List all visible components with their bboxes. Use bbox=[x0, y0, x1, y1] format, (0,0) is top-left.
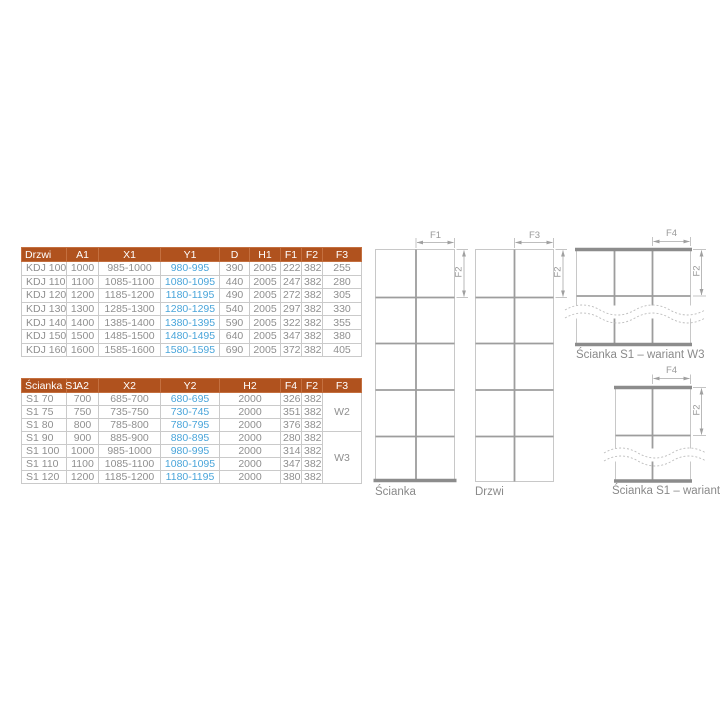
spec-sheet: Drzwi A1 X1 Y1 D H1 F1 F2 F3 KDJ 1001000… bbox=[0, 0, 720, 720]
table-cell: 1100 bbox=[67, 458, 99, 471]
group-cell: W2 bbox=[323, 393, 362, 432]
dim-label-f1: F1 bbox=[423, 231, 448, 241]
table-cell: 382 bbox=[302, 289, 323, 303]
table-cell: 685-700 bbox=[99, 393, 161, 406]
table-cell: 255 bbox=[323, 262, 362, 276]
column-header: H2 bbox=[220, 379, 281, 393]
table-cell: 735-750 bbox=[99, 406, 161, 419]
table-row: KDJ 14014001385-14001380-139559020053223… bbox=[22, 316, 362, 330]
column-header: Y2 bbox=[161, 379, 220, 393]
table-cell: 382 bbox=[302, 445, 323, 458]
table-cell: S1 110 bbox=[22, 458, 67, 471]
table-cell: 640 bbox=[220, 329, 250, 343]
table-cell: S1 120 bbox=[22, 471, 67, 484]
table-cell: 382 bbox=[302, 329, 323, 343]
table-cell: 390 bbox=[220, 262, 250, 276]
table-cell: 2000 bbox=[220, 471, 281, 484]
caption-drzwi: Drzwi bbox=[475, 486, 504, 498]
table-cell: 1585-1600 bbox=[99, 343, 161, 357]
table-cell: 372 bbox=[281, 343, 302, 357]
column-header: F2 bbox=[302, 379, 323, 393]
table-cell: KDJ 140 bbox=[22, 316, 67, 330]
table-cell: S1 70 bbox=[22, 393, 67, 406]
header-row: Ścianka S1 A2 X2 Y2 H2 F4 F2 F3 bbox=[22, 379, 362, 393]
table-cell: 1480-1495 bbox=[161, 329, 220, 343]
table-row: KDJ 11011001085-11001080-109544020052473… bbox=[22, 275, 362, 289]
table-row: KDJ 16016001585-16001580-159569020053723… bbox=[22, 343, 362, 357]
table-cell: 330 bbox=[323, 302, 362, 316]
table-cell: KDJ 120 bbox=[22, 289, 67, 303]
table-cell: S1 75 bbox=[22, 406, 67, 419]
table-cell: 2000 bbox=[220, 458, 281, 471]
column-header: D bbox=[220, 248, 250, 262]
table-cell: 1485-1500 bbox=[99, 329, 161, 343]
group-cell: W3 bbox=[323, 432, 362, 484]
table-cell: 272 bbox=[281, 289, 302, 303]
table-cell: 1200 bbox=[67, 471, 99, 484]
column-header: F2 bbox=[302, 248, 323, 262]
dim-label-f2: F2 bbox=[693, 261, 703, 282]
table-cell: 1200 bbox=[67, 289, 99, 303]
table-cell: S1 80 bbox=[22, 419, 67, 432]
table-cell: 1400 bbox=[67, 316, 99, 330]
table-cell: 750 bbox=[67, 406, 99, 419]
table-cell: 590 bbox=[220, 316, 250, 330]
table-cell: 382 bbox=[302, 393, 323, 406]
table-cell: 2005 bbox=[250, 262, 281, 276]
table-cell: 2005 bbox=[250, 329, 281, 343]
table-cell: 2000 bbox=[220, 419, 281, 432]
diagram-wariant-w2 bbox=[604, 375, 706, 482]
table-cell: KDJ 130 bbox=[22, 302, 67, 316]
table-cell: 297 bbox=[281, 302, 302, 316]
table-cell: 382 bbox=[302, 419, 323, 432]
table-cell: 382 bbox=[302, 275, 323, 289]
table-cell: 885-900 bbox=[99, 432, 161, 445]
dim-label-f2: F2 bbox=[553, 262, 563, 283]
table-cell: 785-800 bbox=[99, 419, 161, 432]
table-cell: 680-695 bbox=[161, 393, 220, 406]
table-cell: 376 bbox=[281, 419, 302, 432]
column-header: Y1 bbox=[161, 248, 220, 262]
table-cell: 351 bbox=[281, 406, 302, 419]
diagram-wariant-w3 bbox=[565, 237, 706, 345]
table-cell: 2000 bbox=[220, 432, 281, 445]
table-cell: 322 bbox=[281, 316, 302, 330]
table-cell: 326 bbox=[281, 393, 302, 406]
table-cell: 800 bbox=[67, 419, 99, 432]
table-cell: 2000 bbox=[220, 406, 281, 419]
table-cell: 1080-1095 bbox=[161, 275, 220, 289]
table-cell: 1000 bbox=[67, 445, 99, 458]
column-header: F4 bbox=[281, 379, 302, 393]
caption-scianka: Ścianka bbox=[375, 486, 416, 498]
caption-wariant-w3: Ścianka S1 – wariant W3 bbox=[576, 349, 704, 361]
table-cell: 314 bbox=[281, 445, 302, 458]
table-cell: 540 bbox=[220, 302, 250, 316]
table-cell: 1185-1200 bbox=[99, 289, 161, 303]
table-row: S1 80800785-800780-7952000376382 bbox=[22, 419, 362, 432]
table-cell: KDJ 160 bbox=[22, 343, 67, 357]
table-cell: 1300 bbox=[67, 302, 99, 316]
table-cell: 2005 bbox=[250, 275, 281, 289]
dim-label-f2: F2 bbox=[454, 262, 464, 283]
table-row: S1 90900885-900880-8952000280382W3 bbox=[22, 432, 362, 445]
table-cell: 880-895 bbox=[161, 432, 220, 445]
column-header: F1 bbox=[281, 248, 302, 262]
table-cell: KDJ 110 bbox=[22, 275, 67, 289]
table-cell: 980-995 bbox=[161, 262, 220, 276]
table-cell: 405 bbox=[323, 343, 362, 357]
column-header: X1 bbox=[99, 248, 161, 262]
table-cell: 440 bbox=[220, 275, 250, 289]
table-row: S1 11011001085-11001080-10952000347382 bbox=[22, 458, 362, 471]
column-header: F3 bbox=[323, 379, 362, 393]
dim-label-f2: F2 bbox=[693, 400, 703, 421]
table-cell: 900 bbox=[67, 432, 99, 445]
table-row: KDJ 15015001485-15001480-149564020053473… bbox=[22, 329, 362, 343]
table-cell: 1380-1395 bbox=[161, 316, 220, 330]
table-cell: 1385-1400 bbox=[99, 316, 161, 330]
table-cell: 382 bbox=[302, 432, 323, 445]
table-cell: 980-995 bbox=[161, 445, 220, 458]
table-cell: 1180-1195 bbox=[161, 471, 220, 484]
table-cell: 382 bbox=[302, 343, 323, 357]
caption-wariant-w2: Ścianka S1 – wariant W2 bbox=[612, 485, 720, 497]
table-cell: 700 bbox=[67, 393, 99, 406]
table-cell: S1 100 bbox=[22, 445, 67, 458]
column-header: Drzwi bbox=[22, 248, 67, 262]
table-cell: 730-745 bbox=[161, 406, 220, 419]
table-cell: 382 bbox=[302, 316, 323, 330]
column-header: X2 bbox=[99, 379, 161, 393]
table-cell: KDJ 100 bbox=[22, 262, 67, 276]
table-cell: 985-1000 bbox=[99, 262, 161, 276]
dim-label-f4: F4 bbox=[659, 366, 684, 376]
table-cell: KDJ 150 bbox=[22, 329, 67, 343]
table-cell: 2005 bbox=[250, 302, 281, 316]
table-cell: 1085-1100 bbox=[99, 458, 161, 471]
table-cell: 347 bbox=[281, 458, 302, 471]
column-header: H1 bbox=[250, 248, 281, 262]
table-row: S1 75750735-750730-7452000351382 bbox=[22, 406, 362, 419]
table-row: S1 1001000985-1000980-9952000314382 bbox=[22, 445, 362, 458]
table-cell: 380 bbox=[281, 471, 302, 484]
table-cell: 382 bbox=[302, 458, 323, 471]
table-cell: 690 bbox=[220, 343, 250, 357]
table-cell: 1000 bbox=[67, 262, 99, 276]
table-cell: 1500 bbox=[67, 329, 99, 343]
table-cell: 382 bbox=[302, 406, 323, 419]
table-cell: 382 bbox=[302, 302, 323, 316]
table-cell: 247 bbox=[281, 275, 302, 289]
table-cell: 280 bbox=[323, 275, 362, 289]
table-cell: 2005 bbox=[250, 316, 281, 330]
table-cell: 382 bbox=[302, 262, 323, 276]
table-cell: 1185-1200 bbox=[99, 471, 161, 484]
column-header: F3 bbox=[323, 248, 362, 262]
table-cell: 1280-1295 bbox=[161, 302, 220, 316]
table-row: S1 70700685-700680-6952000326382W2 bbox=[22, 393, 362, 406]
table-cell: 305 bbox=[323, 289, 362, 303]
column-header: Ścianka S1 bbox=[22, 379, 67, 393]
table-cell: S1 90 bbox=[22, 432, 67, 445]
table-cell: 1580-1595 bbox=[161, 343, 220, 357]
table-cell: 1285-1300 bbox=[99, 302, 161, 316]
scianka-table: Ścianka S1 A2 X2 Y2 H2 F4 F2 F3 S1 70700… bbox=[21, 378, 362, 484]
table-cell: 222 bbox=[281, 262, 302, 276]
table-cell: 1080-1095 bbox=[161, 458, 220, 471]
table-row: KDJ 1001000985-1000980-99539020052223822… bbox=[22, 262, 362, 276]
drzwi-table: Drzwi A1 X1 Y1 D H1 F1 F2 F3 KDJ 1001000… bbox=[21, 247, 362, 357]
table-cell: 985-1000 bbox=[99, 445, 161, 458]
table-cell: 1180-1195 bbox=[161, 289, 220, 303]
table-cell: 1600 bbox=[67, 343, 99, 357]
header-row: Drzwi A1 X1 Y1 D H1 F1 F2 F3 bbox=[22, 248, 362, 262]
table-cell: 380 bbox=[323, 329, 362, 343]
dim-label-f3: F3 bbox=[522, 231, 547, 241]
table-cell: 780-795 bbox=[161, 419, 220, 432]
column-header: A1 bbox=[67, 248, 99, 262]
table-cell: 2005 bbox=[250, 343, 281, 357]
table-cell: 490 bbox=[220, 289, 250, 303]
table-cell: 2005 bbox=[250, 289, 281, 303]
table-cell: 280 bbox=[281, 432, 302, 445]
table-row: KDJ 12012001185-12001180-119549020052723… bbox=[22, 289, 362, 303]
table-cell: 355 bbox=[323, 316, 362, 330]
table-cell: 2000 bbox=[220, 393, 281, 406]
table-row: S1 12012001185-12001180-11952000380382 bbox=[22, 471, 362, 484]
table-cell: 1085-1100 bbox=[99, 275, 161, 289]
dim-label-f4: F4 bbox=[659, 229, 684, 239]
table-cell: 347 bbox=[281, 329, 302, 343]
table-cell: 1100 bbox=[67, 275, 99, 289]
table-cell: 382 bbox=[302, 471, 323, 484]
table-row: KDJ 13013001285-13001280-129554020052973… bbox=[22, 302, 362, 316]
table-cell: 2000 bbox=[220, 445, 281, 458]
